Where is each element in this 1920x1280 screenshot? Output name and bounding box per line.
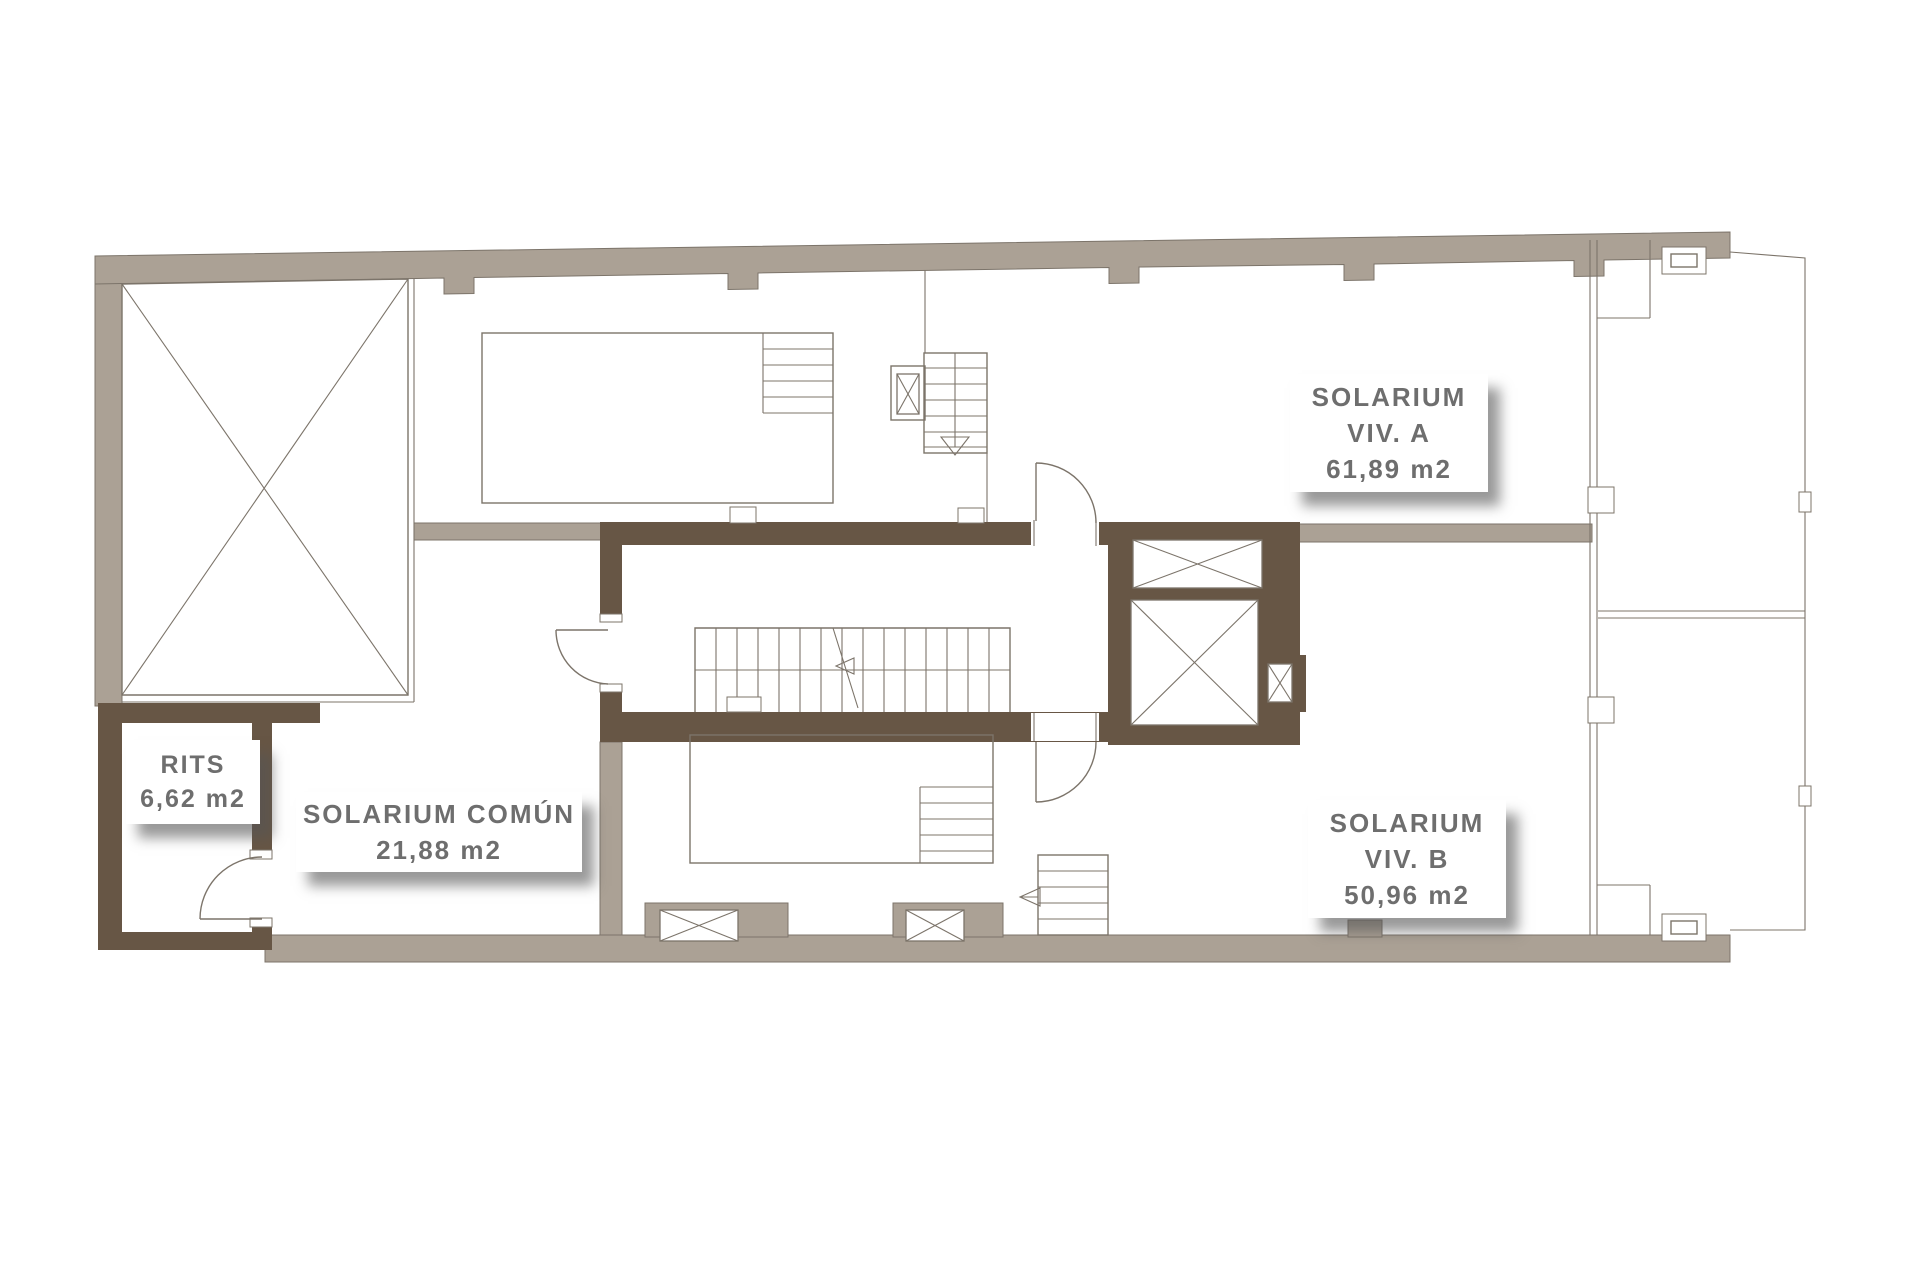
core-doors <box>556 463 1099 802</box>
room-name: SOLARIUM COMÚN <box>303 796 575 832</box>
room-area: 50,96 m2 <box>1344 877 1470 913</box>
room-unit: VIV. B <box>1365 841 1450 877</box>
terrace <box>1588 240 1811 935</box>
room-name: RITS <box>161 748 226 782</box>
drain <box>1662 247 1706 274</box>
column-base <box>730 507 756 523</box>
door-frame <box>600 614 622 622</box>
facade-column <box>1588 487 1614 513</box>
label-solarium-comun: SOLARIUM COMÚN 21,88 m2 <box>296 792 582 872</box>
facade-column <box>1588 697 1614 723</box>
door-swing-north <box>1036 463 1096 523</box>
room-name: SOLARIUM <box>1330 805 1485 841</box>
roof-staircase <box>891 270 987 523</box>
wall-step <box>1348 920 1382 937</box>
main-staircase <box>695 628 1010 712</box>
floor-plan-page: RITS 6,62 m2 SOLARIUM COMÚN 21,88 m2 SOL… <box>0 0 1920 1280</box>
solarium-b-stair <box>1020 855 1108 935</box>
column-base <box>958 508 984 523</box>
door-swing-south <box>1036 742 1096 802</box>
roof-drains <box>1662 247 1706 941</box>
room-unit: VIV. A <box>1347 415 1431 451</box>
edge-notch <box>1799 786 1811 806</box>
label-solarium-a: SOLARIUM VIV. A 61,89 m2 <box>1290 374 1488 492</box>
pool-a <box>482 333 833 523</box>
void-skylight <box>122 279 414 702</box>
floor-plan-drawing <box>0 0 1920 1280</box>
room-area: 61,89 m2 <box>1326 451 1452 487</box>
drain <box>1662 914 1706 941</box>
room-area: 6,62 m2 <box>140 782 246 816</box>
edge-notch <box>1799 492 1811 512</box>
door-frame <box>600 684 622 692</box>
room-name: SOLARIUM <box>1312 379 1467 415</box>
label-solarium-b: SOLARIUM VIV. B 50,96 m2 <box>1308 800 1506 918</box>
rits-door-swing <box>200 857 262 919</box>
pool-b <box>690 735 993 863</box>
label-rits: RITS 6,62 m2 <box>126 740 260 824</box>
room-area: 21,88 m2 <box>376 832 502 868</box>
